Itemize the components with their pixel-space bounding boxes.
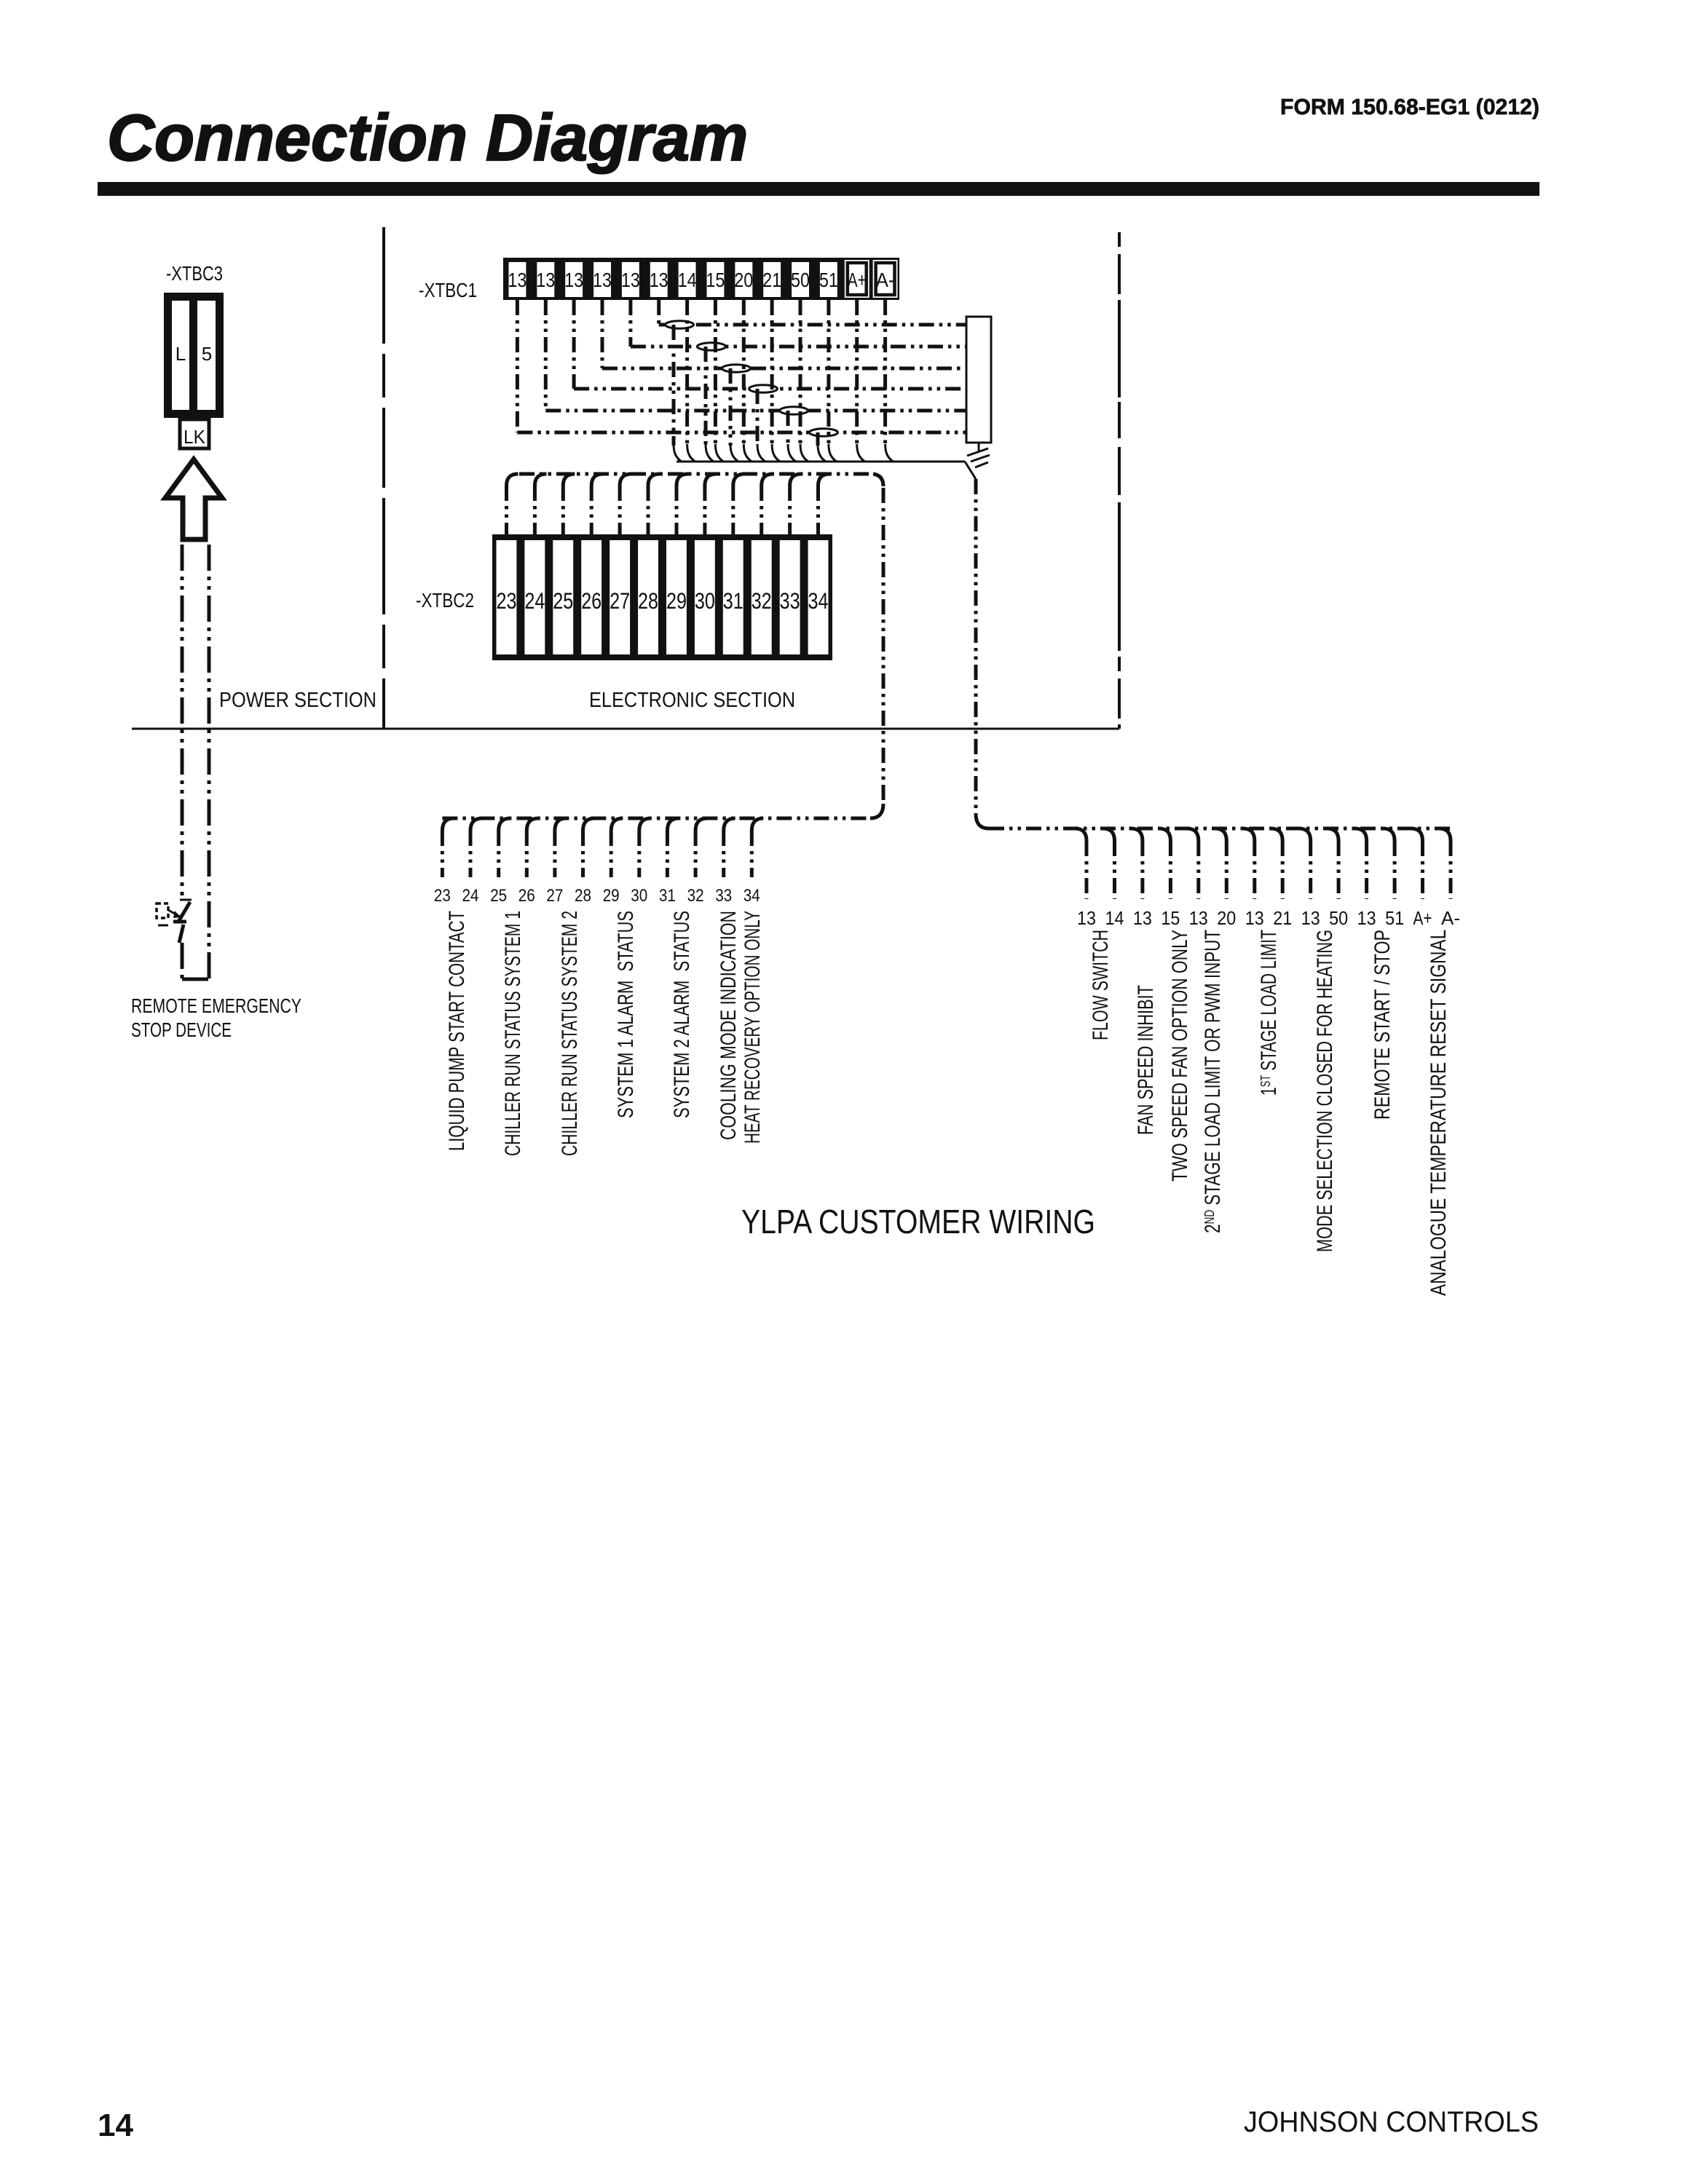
svg-text:LK: LK: [184, 426, 206, 448]
svg-text:13: 13: [650, 269, 669, 291]
svg-text:15: 15: [1161, 907, 1180, 929]
svg-text:24: 24: [524, 587, 545, 614]
svg-text:13: 13: [1357, 907, 1376, 929]
svg-text:25: 25: [553, 587, 573, 614]
svg-text:Connection Diagram: Connection Diagram: [107, 102, 748, 175]
svg-text:-XTBC3: -XTBC3: [166, 262, 223, 285]
svg-text:SYSTEM 2 ALARM STATUS: SYSTEM 2 ALARM STATUS: [670, 911, 694, 1118]
svg-text:26: 26: [581, 587, 602, 614]
svg-text:5: 5: [202, 343, 212, 365]
svg-text:A-: A-: [1441, 907, 1460, 929]
svg-text:FORM 150.68-EG1 (0212): FORM 150.68-EG1 (0212): [1280, 94, 1539, 119]
svg-text:34: 34: [808, 587, 829, 614]
svg-text:1ST STAGE LOAD LIMIT: 1ST STAGE LOAD LIMIT: [1257, 930, 1281, 1096]
svg-text:14: 14: [678, 269, 697, 291]
svg-text:SYSTEM 1 ALARM STATUS: SYSTEM 1 ALARM STATUS: [614, 911, 638, 1118]
svg-text:13: 13: [1133, 907, 1152, 929]
svg-text:13: 13: [508, 269, 526, 291]
svg-text:REMOTE START / STOP: REMOTE START / STOP: [1370, 930, 1395, 1120]
svg-text:13: 13: [593, 269, 612, 291]
svg-text:FLOW SWITCH: FLOW SWITCH: [1089, 930, 1113, 1040]
svg-text:34: 34: [744, 886, 760, 906]
svg-text:50: 50: [1329, 907, 1348, 929]
svg-text:TWO SPEED FAN OPTION ONLY: TWO SPEED FAN OPTION ONLY: [1168, 930, 1192, 1182]
svg-text:ELECTRONIC SECTION: ELECTRONIC SECTION: [589, 689, 795, 712]
svg-text:51: 51: [1385, 907, 1404, 929]
svg-text:20: 20: [734, 269, 753, 291]
svg-text:28: 28: [575, 886, 591, 906]
svg-text:14: 14: [1105, 907, 1124, 929]
svg-text:HEAT RECOVERY OPTION ONLY: HEAT RECOVERY OPTION ONLY: [741, 911, 765, 1144]
svg-text:27: 27: [546, 886, 563, 906]
svg-text:13: 13: [564, 269, 583, 291]
svg-text:FAN SPEED INHIBIT: FAN SPEED INHIBIT: [1134, 985, 1158, 1135]
svg-text:21: 21: [762, 269, 781, 291]
svg-text:A+: A+: [1413, 907, 1432, 929]
svg-text:20: 20: [1217, 907, 1236, 929]
svg-text:ANALOGUE TEMPERATURE RESET SIG: ANALOGUE TEMPERATURE RESET SIGNAL: [1427, 930, 1451, 1296]
svg-text:23: 23: [434, 886, 451, 906]
svg-text:32: 32: [687, 886, 704, 906]
svg-text:13: 13: [1245, 907, 1264, 929]
svg-text:CHILLER RUN STATUS SYSTEM 1: CHILLER RUN STATUS SYSTEM 1: [501, 911, 525, 1156]
svg-text:L: L: [175, 343, 186, 365]
svg-text:50: 50: [791, 269, 810, 291]
svg-text:-XTBC1: -XTBC1: [419, 279, 477, 301]
svg-text:13: 13: [536, 269, 555, 291]
svg-text:29: 29: [666, 587, 687, 614]
svg-text:13: 13: [621, 269, 640, 291]
svg-text:21: 21: [1273, 907, 1292, 929]
svg-text:JOHNSON CONTROLS: JOHNSON CONTROLS: [1244, 2106, 1539, 2138]
svg-text:A+: A+: [848, 269, 867, 291]
svg-text:33: 33: [780, 587, 800, 614]
svg-text:27: 27: [610, 587, 630, 614]
svg-text:LIQUID PUMP START CONTACT: LIQUID PUMP START CONTACT: [445, 911, 469, 1151]
svg-text:REMOTE EMERGENCY: REMOTE EMERGENCY: [131, 994, 301, 1017]
svg-text:MODE SELECTION CLOSED FOR HEAT: MODE SELECTION CLOSED FOR HEATING: [1313, 930, 1337, 1252]
svg-text:30: 30: [631, 886, 647, 906]
svg-text:25: 25: [490, 886, 507, 906]
svg-text:32: 32: [752, 587, 772, 614]
svg-text:31: 31: [723, 587, 744, 614]
svg-text:YLPA CUSTOMER WIRING: YLPA CUSTOMER WIRING: [741, 1203, 1095, 1241]
svg-text:15: 15: [706, 269, 725, 291]
svg-text:13: 13: [1189, 907, 1208, 929]
svg-text:-XTBC2: -XTBC2: [416, 589, 474, 612]
svg-text:28: 28: [638, 587, 658, 614]
svg-text:33: 33: [715, 886, 732, 906]
svg-text:STOP DEVICE: STOP DEVICE: [131, 1018, 232, 1041]
svg-text:POWER SECTION: POWER SECTION: [219, 689, 376, 712]
svg-text:13: 13: [1301, 907, 1320, 929]
svg-text:14: 14: [98, 2108, 133, 2143]
svg-text:13: 13: [1077, 907, 1096, 929]
svg-text:COOLING MODE INDICATION: COOLING MODE INDICATION: [717, 911, 741, 1140]
svg-text:23: 23: [497, 587, 517, 614]
svg-text:31: 31: [659, 886, 676, 906]
svg-text:CHILLER RUN STATUS SYSTEM 2: CHILLER RUN STATUS SYSTEM 2: [558, 911, 582, 1156]
svg-text:30: 30: [695, 587, 715, 614]
svg-text:29: 29: [603, 886, 620, 906]
svg-text:24: 24: [462, 886, 479, 906]
svg-text:A-: A-: [876, 269, 895, 291]
svg-text:2ND STAGE LOAD LIMIT OR PWM IN: 2ND STAGE LOAD LIMIT OR PWM INPUT: [1201, 930, 1225, 1233]
svg-text:51: 51: [819, 269, 838, 291]
svg-text:26: 26: [518, 886, 535, 906]
